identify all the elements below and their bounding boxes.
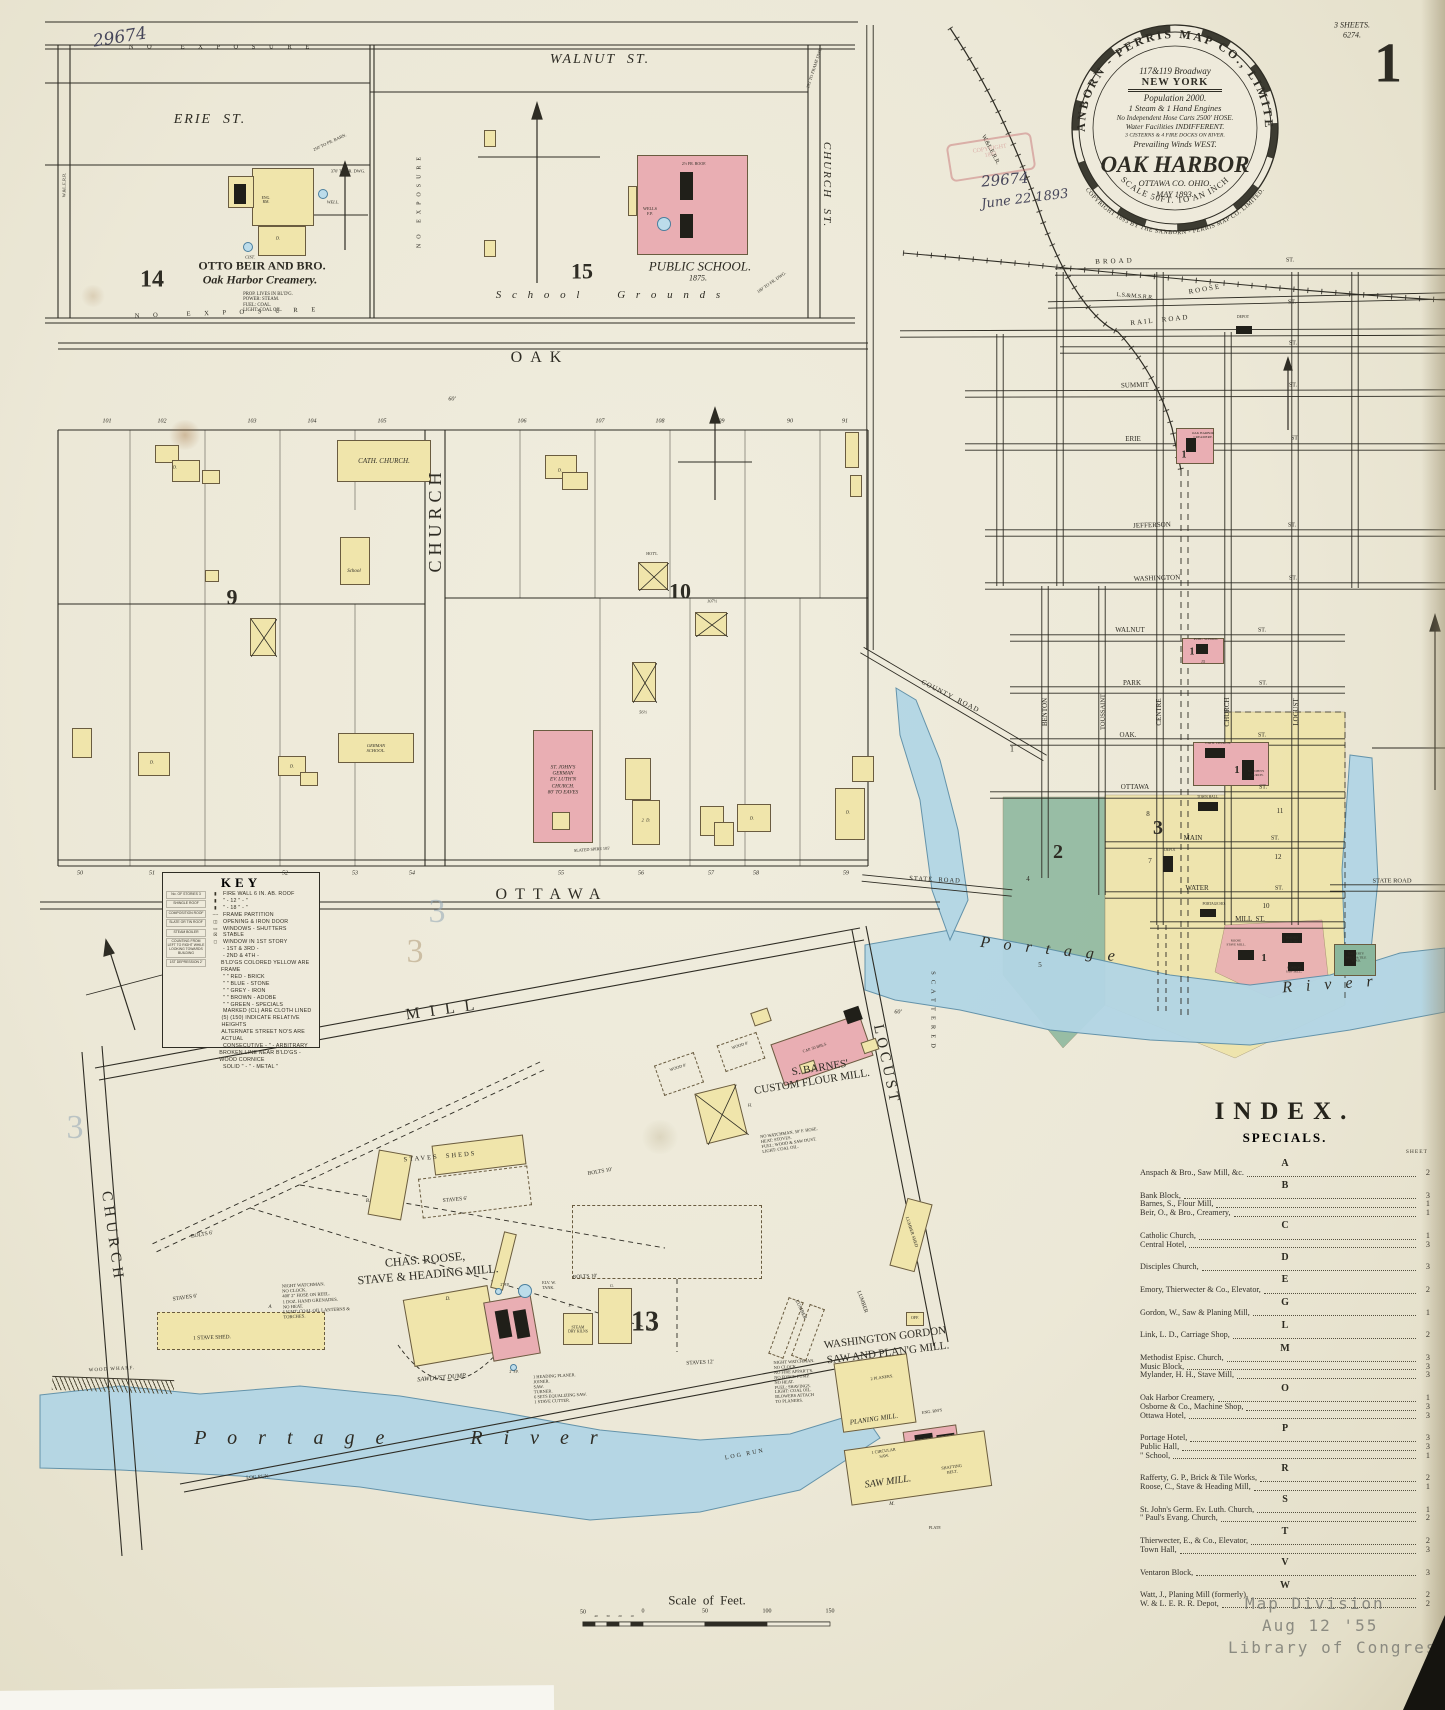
- st-johns-small-label: ST. JOHN'S CHURCH.: [1248, 770, 1265, 778]
- no-exposure-note: N O E X P O S U R E: [129, 43, 316, 50]
- creamery-name2: Oak Harbor Creamery.: [203, 273, 318, 286]
- stable: [250, 618, 276, 656]
- key-row: " " GREEN - SPECIALS: [208, 1002, 316, 1009]
- index-letter: E: [1140, 1274, 1430, 1285]
- portage-hotel-bldg: [1200, 909, 1216, 917]
- index-dots: [1190, 1441, 1416, 1442]
- rail-road: [900, 329, 1445, 331]
- key-row-text: - 2ND & 4TH -: [223, 953, 259, 960]
- street-suffix: ST.: [1258, 733, 1266, 740]
- machinery-list: 1 HEADING PLANER. JOINER. SAW. TURNER. 6…: [533, 1372, 587, 1405]
- key-row: (5) (150) INDICATE RELATIVE HEIGHTS: [208, 1015, 316, 1029]
- special-number: 1: [1234, 764, 1240, 776]
- depot-label: DEPOT: [1164, 848, 1176, 852]
- street-suffix: ST.: [1259, 785, 1267, 792]
- fire-plug-label: 2" F.P.: [500, 1283, 509, 1287]
- lot-number: 59: [843, 871, 849, 878]
- mill-building: [598, 1288, 632, 1344]
- lot-number: 108: [656, 419, 665, 426]
- lot-number: 53: [352, 871, 358, 878]
- index-dots: [1180, 1553, 1416, 1554]
- index-entry-name: Ottawa Hotel,: [1140, 1412, 1186, 1421]
- lot-number: 56½: [639, 709, 647, 714]
- index-entry: Central Hotel,3: [1140, 1241, 1430, 1250]
- lot-number: 58: [753, 871, 759, 878]
- block-num-small: 1: [1010, 746, 1014, 755]
- street-ottawa-right: OTTAWA: [1121, 784, 1149, 792]
- school-grounds: S c h o o l G r o u n d s: [496, 289, 724, 301]
- block-num-small: 11: [1277, 808, 1284, 816]
- index-entry-name: Gordon, W., Saw & Planing Mill,: [1140, 1309, 1250, 1318]
- key-row-text: " " RED - BRICK: [223, 974, 265, 981]
- street-oak: OAK: [511, 349, 570, 367]
- block-number-13: 13: [631, 1306, 659, 1337]
- special-number: 1: [1182, 449, 1187, 460]
- block-number-9: 9: [227, 586, 238, 611]
- index-entry-name: Ventaron Block,: [1140, 1569, 1193, 1578]
- street-suffix: ST.: [1275, 886, 1283, 893]
- creamery-city-bldg: [1186, 438, 1196, 452]
- index-entry: Roose, C., Stave & Heading Mill,1: [1140, 1483, 1430, 1492]
- stamp-line: Map Division: [1245, 1594, 1385, 1613]
- index-dots: [1189, 1247, 1416, 1248]
- index-entry: Ventaron Block,3: [1140, 1569, 1430, 1578]
- dwelling-label: D.: [446, 1297, 451, 1303]
- dwelling: [845, 432, 859, 468]
- key-row-text: MARKED (CL) ARE CLOTH LINED: [223, 1008, 311, 1015]
- index-letter: B: [1140, 1180, 1430, 1191]
- street-state-road: STATE ROAD: [1372, 877, 1411, 884]
- lot-number: 104: [308, 419, 317, 426]
- block-number-14: 14: [140, 267, 164, 294]
- key-row: ▮FIRE WALL 6 IN. AB. ROOF: [208, 891, 316, 898]
- block-num-small: 10: [1263, 903, 1270, 911]
- lot-number: 91: [842, 419, 848, 426]
- seal-water: Water Facilities INDIFFERENT.: [1126, 122, 1225, 131]
- street-washington: WASHINGTON: [1134, 574, 1181, 583]
- key-symbol-icon: [208, 1002, 223, 1009]
- street-ottawa: OTTAWA: [496, 886, 609, 904]
- key-row: SOLID " - " - METAL ": [208, 1064, 316, 1071]
- key-row: CONSECUTIVE - " - ARBITRARY: [208, 1043, 316, 1050]
- seal-title: OAK HARBOR: [1101, 152, 1250, 177]
- school-small-label: PUBL. SCHOOL.: [1194, 638, 1219, 642]
- dwelling-label: D.: [750, 815, 754, 820]
- cross-braces: [633, 663, 657, 703]
- index-dots: [1196, 1575, 1416, 1576]
- no-exposure-note: NO EXPOSURE: [417, 152, 424, 248]
- street-suffix: ST.: [1288, 300, 1296, 307]
- index-letter: M: [1140, 1343, 1430, 1354]
- key-side-column: No. OF STORIES 3SHINGLE ROOFCOMPOSITION …: [166, 891, 206, 1071]
- index-dots: [1254, 1490, 1416, 1491]
- index-entry-name: " School,: [1140, 1452, 1170, 1461]
- town-hall-label: TOWN HALL.: [1197, 795, 1219, 799]
- street-broad: BROAD: [1095, 257, 1135, 266]
- lot-number: 55: [558, 871, 564, 878]
- index-entry: Beir, O., & Bro., Creamery,1: [1140, 1209, 1430, 1218]
- dwelling-label: D.: [276, 235, 280, 240]
- lot-number: 50: [77, 871, 83, 878]
- creamery-boiler: [234, 184, 246, 204]
- key-row-text: CONSECUTIVE - " - ARBITRARY: [223, 1043, 308, 1050]
- street-main: MAIN: [1184, 835, 1203, 843]
- hotel-label: HOT'L: [646, 552, 657, 556]
- index-sheet-header: SHEET: [1140, 1149, 1428, 1155]
- key-row: ☒STABLE: [208, 932, 316, 939]
- index-subtitle: SPECIALS.: [1140, 1130, 1430, 1146]
- street-locust-right: LOCUST: [1293, 698, 1301, 725]
- key-row: ◻WINDOW IN 1ST STORY: [208, 939, 316, 946]
- scattered-note: SCATTERED: [929, 971, 936, 1053]
- index-entry: Thierwecter, E., & Co., Elevator,2: [1140, 1537, 1430, 1546]
- street-oak-right: OAK.: [1120, 732, 1137, 740]
- hotel-building: [638, 562, 668, 590]
- index-dots: [1218, 1401, 1416, 1402]
- key-row-text: " " BROWN - ADOBE: [223, 995, 276, 1002]
- street-walnut-right: WALNUT: [1115, 627, 1145, 635]
- index-panel: INDEX. SPECIALS. SHEET AAnspach & Bro., …: [1140, 1098, 1430, 1609]
- well-label: WELL.: [327, 201, 339, 206]
- summit-st: [965, 390, 1445, 391]
- seal-address: 117&119 Broadway: [1139, 66, 1211, 76]
- index-dots: [1184, 1198, 1416, 1199]
- lot-width: 60': [894, 1010, 901, 1017]
- key-title: KEY: [166, 875, 316, 891]
- key-row: ALTERNATE STREET NO'S ARE ACTUAL: [208, 1029, 316, 1043]
- sanborn-map-sheet: SANBORN - PERRIS MAP CO., LIMITED SCALE …: [0, 0, 1445, 1710]
- seal-city: NEW YORK: [1142, 77, 1209, 88]
- key-row: " " GREY - IRON: [208, 988, 316, 995]
- key-row-text: FIRE WALL 6 IN. AB. ROOF: [223, 891, 295, 898]
- sheets-note: 3 SHEETS. 6274.: [1334, 21, 1370, 40]
- school-building: [340, 537, 370, 585]
- railroad-wle: W.&L.E.R.R.: [61, 173, 66, 197]
- well-icon: [318, 189, 328, 199]
- gordon-small-label: GORDON SAW MILL.: [1286, 966, 1302, 973]
- key-row: " " RED - BRICK: [208, 974, 316, 981]
- key-row-text: " " BLUE - STONE: [223, 981, 270, 988]
- stamp-line: Aug 12 '55: [1262, 1616, 1378, 1635]
- key-row: ╌╌FRAME PARTITION: [208, 912, 316, 919]
- key-symbol-icon: [208, 981, 223, 988]
- street-erie-right: ERIE: [1125, 436, 1141, 444]
- lot-number: 56: [638, 871, 644, 878]
- dwelling: [632, 662, 656, 702]
- printthrough-numeral: 3: [407, 933, 424, 971]
- stamp-line: Library of Congress: [1228, 1638, 1445, 1657]
- lot-number: 109: [716, 419, 725, 426]
- dwelling: [202, 470, 220, 484]
- public-school-name: PUBLIC SCHOOL.: [649, 260, 752, 275]
- street-suffix: ST.: [1291, 436, 1299, 443]
- key-symbol-icon: [208, 988, 223, 995]
- index-dots: [1227, 1361, 1416, 1362]
- key-rows: ▮FIRE WALL 6 IN. AB. ROOF▮" - 12 " - "▮"…: [208, 891, 316, 1071]
- dwelling: [72, 728, 92, 758]
- index-dots: [1237, 1378, 1416, 1379]
- street-water: WATER: [1185, 885, 1208, 893]
- key-row-text: " " GREEN - SPECIALS: [223, 1002, 283, 1009]
- st-johns-church-name: ST. JOHN'S GERMAN EV. LUTH'N CHURCH. 80'…: [548, 764, 578, 795]
- gordon-mill-notes: NIGHT WATCHMAN. NO CLOCK. NO FIRE APPAR'…: [773, 1359, 816, 1405]
- barnes-small-label: BARNES FLOUR MILL.: [1282, 936, 1302, 943]
- roose-engine-room: [483, 1294, 541, 1361]
- key-row: " " BLUE - STONE: [208, 981, 316, 988]
- index-dots: [1202, 1270, 1416, 1271]
- public-school-year: 1875.: [689, 275, 707, 284]
- county-road: [860, 653, 1043, 761]
- street-summit: SUMMIT: [1121, 382, 1149, 391]
- paper-edge-shade: [1421, 0, 1445, 1710]
- key-symbol-icon: [208, 1008, 223, 1015]
- key-row: ◫OPENING & IRON DOOR: [208, 919, 316, 926]
- key-symbol-icon: [208, 960, 221, 974]
- printthrough-numeral: 3: [67, 1109, 84, 1147]
- block-num-small: 12: [1275, 854, 1282, 862]
- block-number-15: 15: [571, 260, 593, 285]
- street-jefferson: JEFFERSON: [1133, 521, 1171, 530]
- index-entry: Gordon, W., Saw & Planing Mill,1: [1140, 1309, 1430, 1318]
- school-label: School: [347, 569, 361, 575]
- creamery-name: OTTO BEIR AND BRO.: [198, 259, 325, 272]
- index-dots: [1264, 1293, 1416, 1294]
- index-letter: R: [1140, 1463, 1430, 1474]
- dwelling-label: D.: [150, 759, 154, 764]
- index-dots: [1233, 1338, 1416, 1339]
- key-symbol-icon: [208, 995, 223, 1002]
- key-symbol-icon: [208, 974, 223, 981]
- index-letter: G: [1140, 1297, 1430, 1308]
- key-row-text: FRAME PARTITION: [223, 912, 274, 919]
- lot-number: 103: [248, 419, 257, 426]
- street-mill-right: MILL ST.: [1235, 916, 1265, 924]
- river-name: P o r t a g e R i v e r: [194, 1427, 605, 1449]
- roose-mill-notes: NIGHT WATCHMAN. NO CLOCK. 400' 2" HOSE O…: [282, 1280, 351, 1320]
- key-row: MARKED (CL) ARE CLOTH LINED: [208, 1008, 316, 1015]
- tank-label: ELV. W. TANK.: [542, 1281, 556, 1291]
- bolts-note: BOLTS 10': [572, 1273, 597, 1280]
- index-sections: AAnspach & Bro., Saw Mill, &c.2BBank Blo…: [1140, 1158, 1430, 1609]
- key-symbol-icon: ▭: [208, 926, 223, 933]
- lot-number: 52: [282, 871, 288, 878]
- index-title: INDEX.: [1140, 1098, 1430, 1126]
- outbuilding: [300, 772, 318, 786]
- index-entry: Public Hall,3: [1140, 1443, 1430, 1452]
- special-number: 1: [1261, 952, 1267, 964]
- seal-hose: No Independent Hose Carts 2500' HOSE.: [1116, 114, 1234, 122]
- lot-number: 107½: [707, 598, 717, 603]
- key-symbol-icon: [208, 953, 223, 960]
- depot-bldg: [1163, 856, 1173, 872]
- index-entry: Mylander, H. H., Stave Mill,3: [1140, 1371, 1430, 1380]
- key-side-item: COUNTING FROM LEFT TO RIGHT WHILE LOOKIN…: [166, 938, 206, 958]
- school-city-bldg: [1196, 644, 1208, 654]
- school-window: [680, 214, 693, 238]
- wells-label: WELLS F.P.: [643, 207, 657, 217]
- seal-date: MAY 1893.: [1155, 189, 1194, 199]
- seal-population: Population 2000.: [1143, 93, 1207, 103]
- key-symbol-icon: [208, 1043, 223, 1050]
- church-spire: [552, 812, 570, 830]
- scale-tick: 50: [580, 1610, 586, 1617]
- scale-tick: 50: [702, 1609, 708, 1616]
- index-dots: [1182, 1450, 1416, 1451]
- key-row: ▭WINDOWS - SHUTTERS: [208, 926, 316, 933]
- index-entry-name: Emory, Thierwecter & Co., Elevator,: [1140, 1286, 1261, 1295]
- block-num-small: 4: [1026, 876, 1030, 884]
- creamery-small-label: OAK HARBOR CREAMERY.: [1192, 432, 1214, 440]
- dry-kilns-label: STEAM DRY KILNS: [568, 1326, 588, 1335]
- lot-number: 57: [708, 871, 714, 878]
- key-row-text: B'LD'GS COLORED YELLOW ARE FRAME: [221, 960, 316, 974]
- dwelling-label: 2 D.: [642, 817, 651, 822]
- lot-lines: [130, 430, 820, 866]
- index-entry: Emory, Thierwecter & Co., Elevator,2: [1140, 1286, 1430, 1295]
- lot-number: 101: [103, 419, 112, 426]
- seal-engines: 1 Steam & 1 Hand Engines: [1129, 103, 1222, 113]
- key-side-item: SHINGLE ROOF: [166, 900, 206, 908]
- street-suffix: ST.: [1289, 341, 1297, 348]
- index-entry-name: Central Hotel,: [1140, 1241, 1186, 1250]
- fire-plug-label: 2" F.P.: [509, 1370, 518, 1374]
- key-symbol-icon: [208, 1050, 219, 1064]
- dwelling: [172, 460, 200, 482]
- key-row-text: - 1ST & 3RD -: [223, 946, 259, 953]
- index-entry: Ottawa Hotel,3: [1140, 1412, 1430, 1421]
- district-number-2: 2: [1053, 841, 1063, 863]
- index-dots: [1246, 1410, 1416, 1411]
- street-benton: BENTON: [1042, 698, 1050, 726]
- index-dots: [1189, 1418, 1416, 1419]
- town-hall-bldg: [1198, 802, 1218, 811]
- index-letter: D: [1140, 1252, 1430, 1263]
- lot-width: 60': [448, 397, 455, 404]
- key-side-item: No. OF STORIES 3: [166, 891, 206, 899]
- index-entry: " School,1: [1140, 1452, 1430, 1461]
- index-entry: Town Hall,3: [1140, 1546, 1430, 1555]
- outbuilding: [205, 570, 219, 582]
- dwelling: [850, 475, 862, 497]
- dwelling-label: D.: [846, 809, 850, 814]
- district-number-3: 3: [1153, 817, 1163, 839]
- bolts-yard: [572, 1205, 762, 1279]
- street-suffix: ST.: [1288, 523, 1296, 530]
- index-letter: T: [1140, 1526, 1430, 1537]
- index-letter: C: [1140, 1220, 1430, 1231]
- well-icon: [243, 242, 253, 252]
- rafferty-label: RAFFERTY BRICK & TILE YARD.: [1346, 953, 1367, 964]
- portage-hotel-label: PORTAGE HO.: [1202, 902, 1225, 906]
- key-row-text: " - 12 " - ": [223, 898, 248, 905]
- key-symbol-icon: ◫: [208, 919, 223, 926]
- block-num-small: 8: [1146, 811, 1150, 819]
- key-row-text: ALTERNATE STREET NO'S ARE ACTUAL: [221, 1029, 316, 1043]
- index-entry: Disciples Church,3: [1140, 1263, 1430, 1272]
- distance-note: 370' TO FR. DWG.: [331, 170, 365, 175]
- key-row: ▮" - 12 " - ": [208, 898, 316, 905]
- index-letter: W: [1140, 1580, 1430, 1591]
- street-church-right: CHURCH: [1224, 697, 1232, 726]
- portage-river-north-branch: [1342, 755, 1378, 960]
- key-side-item: COMPOSITION ROOF: [166, 910, 206, 918]
- office-label: OFF.: [911, 1316, 919, 1320]
- dwelling-label: D.: [173, 464, 177, 469]
- roose-small-label: ROOSE STAVE MILL.: [1227, 939, 1246, 946]
- cath-church-city-bldg: [1205, 748, 1225, 758]
- key-row-text: (5) (150) INDICATE RELATIVE HEIGHTS: [222, 1015, 316, 1029]
- key-row: BROKEN LINE NEAR B'LD'GS - WOOD CORNICE: [208, 1050, 316, 1064]
- rail-depot-bldg: [1236, 326, 1252, 334]
- lot-number: 90: [787, 419, 793, 426]
- index-entry-name: W. & L. E. R. R. Depot,: [1140, 1600, 1219, 1609]
- sheet-number: 1: [1374, 33, 1402, 96]
- well-icon: [495, 1288, 502, 1295]
- index-dots: [1247, 1176, 1416, 1177]
- roof-note: 2½ FR. ROOF.: [682, 162, 706, 166]
- catholic-church-name: CATH. CHURCH.: [358, 458, 410, 466]
- key-row-text: STABLE: [223, 932, 244, 939]
- index-entry: Anspach & Bro., Saw Mill, &c.2: [1140, 1169, 1430, 1178]
- building-letter: F.: [569, 1304, 572, 1308]
- index-letter: P: [1140, 1423, 1430, 1434]
- building-letter: B.: [366, 1199, 370, 1205]
- index-entry-name: Mylander, H. H., Stave Mill,: [1140, 1371, 1234, 1380]
- street-suffix: ST.: [1258, 628, 1266, 635]
- lot-number: 15: [1201, 660, 1205, 664]
- building-letter: A: [268, 1305, 271, 1311]
- public-school-building: [637, 155, 748, 255]
- outbuilding: [484, 130, 496, 147]
- street-toussaint: TOUSSAINT: [1099, 694, 1106, 730]
- scale-tick: 150: [826, 1609, 835, 1616]
- index-entry-name: Beir, O., & Bro., Creamery,: [1140, 1209, 1231, 1218]
- german-school-label: GERMAN SCHOOL.: [367, 743, 386, 753]
- street-suffix: ST.: [1286, 258, 1294, 265]
- school-porch: [628, 186, 637, 216]
- key-row-text: BROKEN LINE NEAR B'LD'GS - WOOD CORNICE: [219, 1050, 316, 1064]
- index-dots: [1173, 1458, 1416, 1459]
- street-suffix: ST.: [1289, 383, 1297, 390]
- index-entry-name: Disciples Church,: [1140, 1263, 1199, 1272]
- key-symbol-icon: ◻: [208, 939, 223, 946]
- seal-county-state: OTTAWA CO. OHIO.: [1139, 178, 1212, 188]
- street-park: PARK: [1123, 680, 1141, 688]
- special-number: 1: [1190, 646, 1195, 657]
- key-row: ▮" - 18 " - ": [208, 905, 316, 912]
- scale-tick: 10: [630, 1615, 634, 1619]
- street-suffix: ST.: [1259, 681, 1267, 688]
- dwelling: [562, 472, 588, 490]
- building-letter: M.: [889, 1502, 894, 1508]
- building-letter: H.: [748, 1102, 752, 1107]
- key-side-item: SLATE OR TIN ROOF: [166, 919, 206, 927]
- creamery-wing: [258, 226, 306, 256]
- street-suffix: ST.: [1289, 576, 1297, 583]
- index-letter: L: [1140, 1320, 1430, 1331]
- block-num-small: 7: [1148, 858, 1152, 866]
- printthrough-numeral: 3: [429, 893, 446, 931]
- dwelling: [714, 822, 734, 846]
- block-num-small: 5: [1038, 962, 1042, 970]
- scale-bar: [583, 1622, 830, 1626]
- index-entry-name: Town Hall,: [1140, 1546, 1177, 1555]
- key-row-text: " " GREY - IRON: [223, 988, 266, 995]
- index-letter: A: [1140, 1158, 1430, 1169]
- lot-number: 106: [518, 419, 527, 426]
- building-letter: G.: [610, 1284, 614, 1288]
- depot-label: DEPOT: [1237, 315, 1249, 319]
